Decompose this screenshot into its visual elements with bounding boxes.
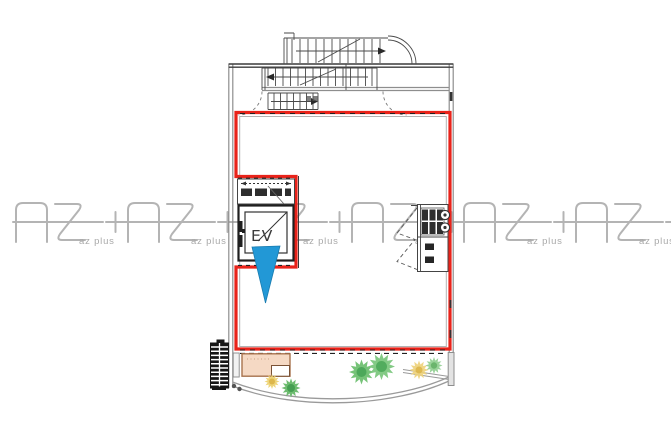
- terrace-mat: [242, 354, 290, 376]
- position-pointer-arrow: [252, 246, 280, 303]
- floor-plan-canvas: az plus: [0, 0, 671, 445]
- folding-door-lines: [397, 208, 417, 270]
- railing-anchor: [232, 384, 236, 388]
- plant-green-bush: [282, 379, 301, 398]
- plant-yellow-flower: [410, 361, 429, 380]
- stair-down-arrowhead: [266, 74, 274, 81]
- balcony-left-post: [233, 353, 239, 377]
- floor-plan-drawing: az plus: [0, 0, 671, 445]
- plant-green-flower: [426, 357, 443, 374]
- external-ladder: [210, 340, 229, 391]
- plant-green-bush: [368, 353, 395, 380]
- balcony-right-post: [448, 353, 454, 386]
- railing-anchor: [237, 387, 241, 391]
- kitchenette-unit: [397, 205, 450, 272]
- elevator-machine-band: [238, 179, 295, 204]
- terrace-step: [272, 366, 290, 377]
- watermark-row: [13, 203, 671, 247]
- wall-tick: [450, 92, 453, 101]
- staircase-middle-flight: [262, 64, 377, 90]
- staircase-upper-flight: [284, 33, 416, 64]
- plant-green-bush: [349, 360, 374, 385]
- staircase-lower-flight: [268, 93, 318, 110]
- top-wall: [229, 64, 453, 67]
- stair-up-arrowhead: [378, 48, 386, 55]
- elevator-label: EV: [251, 227, 273, 245]
